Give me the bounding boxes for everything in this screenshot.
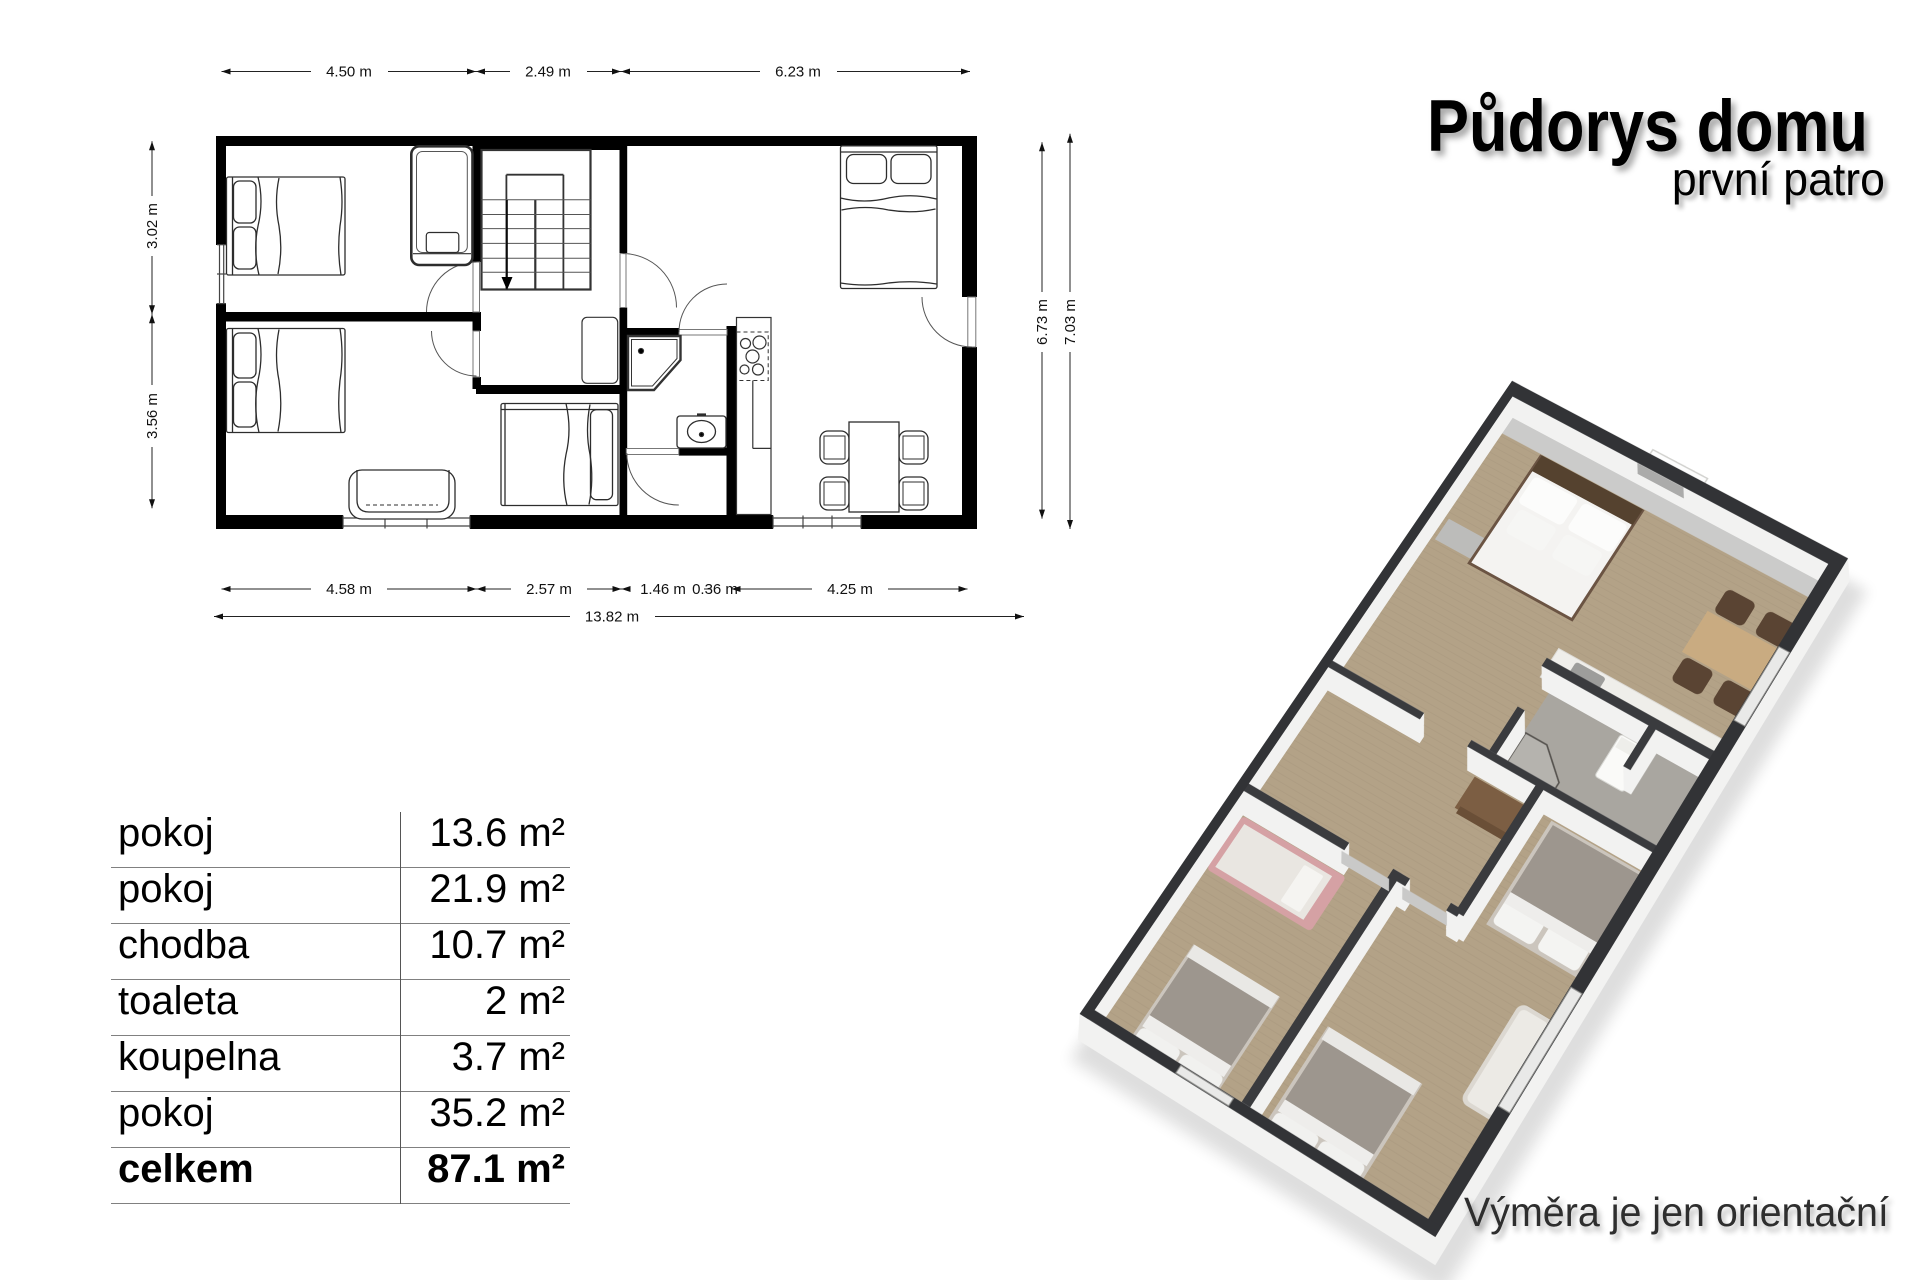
svg-text:2.57 m: 2.57 m: [526, 581, 572, 598]
svg-text:6.73 m: 6.73 m: [1034, 299, 1051, 345]
svg-text:4.50 m: 4.50 m: [326, 64, 372, 81]
svg-text:13.82 m: 13.82 m: [585, 609, 639, 626]
svg-text:4.58 m: 4.58 m: [326, 581, 372, 598]
svg-text:0.36 m: 0.36 m: [692, 581, 738, 598]
svg-text:6.23 m: 6.23 m: [775, 64, 821, 81]
svg-text:3.02 m: 3.02 m: [144, 203, 161, 249]
svg-text:2.49 m: 2.49 m: [525, 64, 571, 81]
svg-text:4.25 m: 4.25 m: [827, 581, 873, 598]
svg-text:7.03 m: 7.03 m: [1062, 299, 1079, 345]
svg-text:1.46 m: 1.46 m: [640, 581, 686, 598]
svg-text:3.56 m: 3.56 m: [144, 393, 161, 439]
